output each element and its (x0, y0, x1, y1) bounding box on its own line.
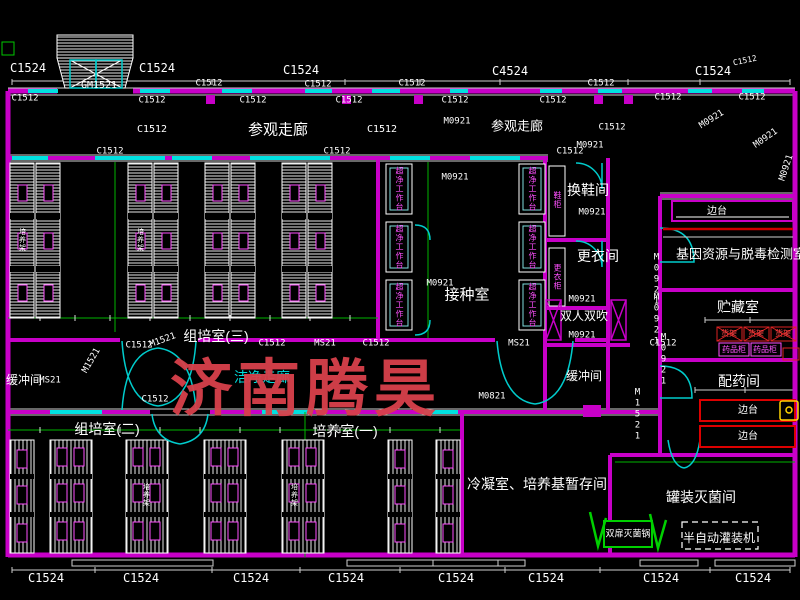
wardrobe-cabinet (549, 248, 565, 306)
shoe-cabinet (549, 166, 565, 236)
side-bench (672, 201, 793, 221)
cad-floorplan-canvas[interactable]: C1524C1524GM1521C1524C4524C1524C1512C151… (0, 0, 800, 600)
clean-benches (386, 164, 565, 330)
entrance-canopy (57, 35, 133, 88)
right-wing-details (663, 201, 799, 447)
watermark-text: 济南腾昊 (170, 338, 442, 428)
medicine-cabinets (719, 343, 781, 356)
sterilizer-equipment (590, 512, 758, 549)
double-door-sterilizer (604, 521, 652, 547)
semi-auto-filler-outline (682, 522, 758, 549)
floorplan-linework (0, 0, 800, 600)
